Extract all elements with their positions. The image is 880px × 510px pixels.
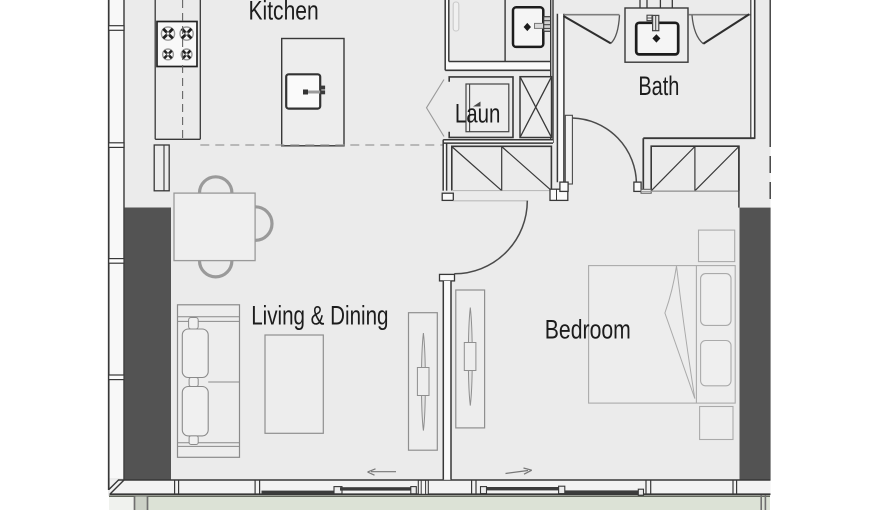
svg-text:Living & Dining: Living & Dining <box>251 300 388 330</box>
svg-text:Bath: Bath <box>638 71 679 101</box>
svg-text:Laun: Laun <box>455 99 501 129</box>
svg-text:Kitchen: Kitchen <box>249 0 319 25</box>
svg-text:Bedroom: Bedroom <box>545 314 631 344</box>
